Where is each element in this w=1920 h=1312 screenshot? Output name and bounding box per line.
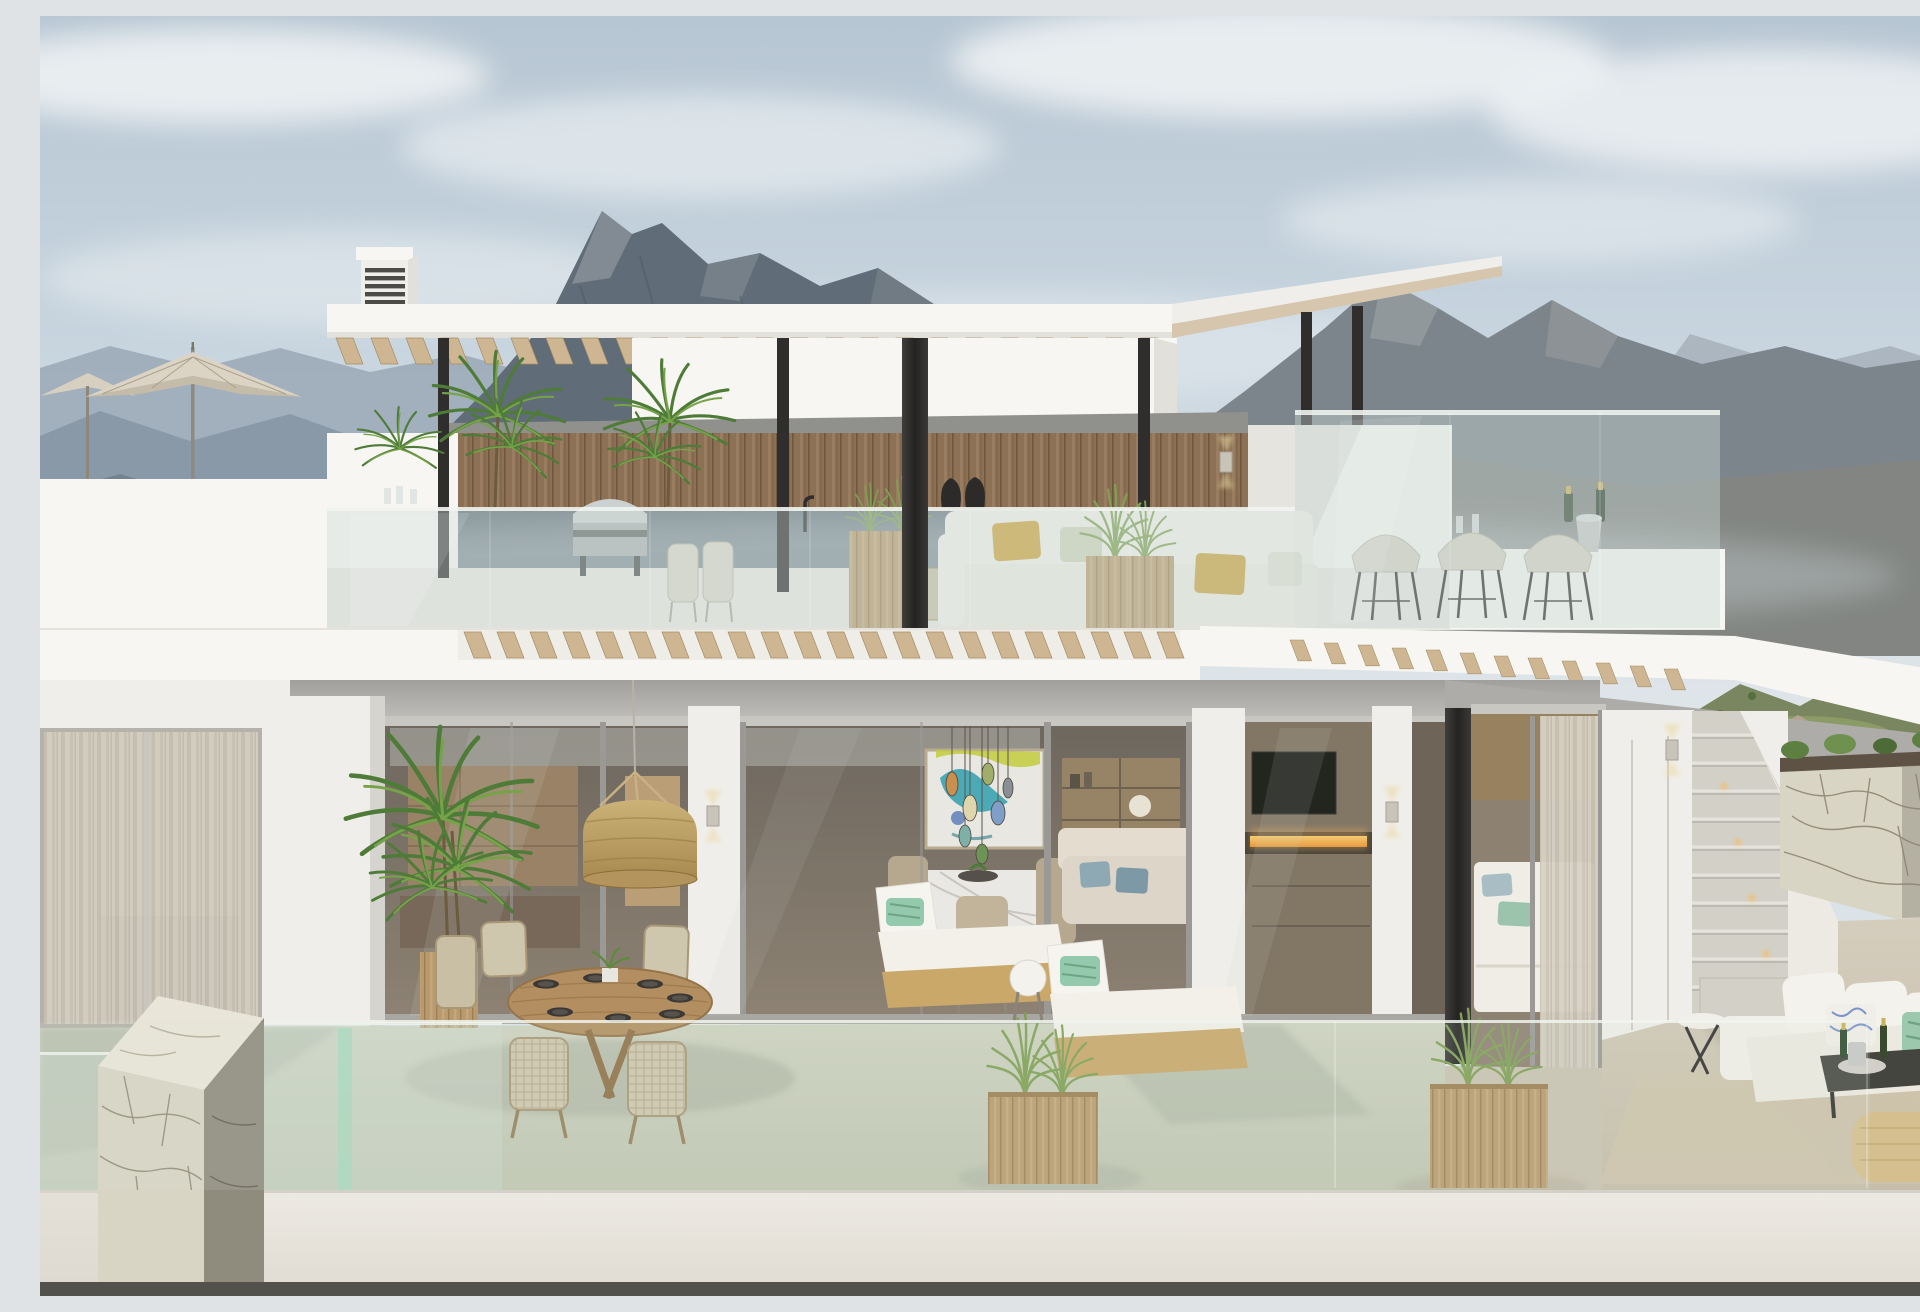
front-parapet — [40, 1190, 1920, 1296]
roof-glass-balustrade — [327, 507, 1295, 629]
lounger-pillow-1 — [886, 898, 924, 926]
bottom-edge-strip — [40, 1282, 1920, 1296]
curtain-door-left — [40, 728, 262, 1028]
stone-retaining-wall — [1780, 731, 1920, 921]
bar-wind-screen — [1295, 410, 1720, 628]
wall-pillar-c — [1372, 706, 1412, 1028]
stair-wall — [1602, 710, 1694, 1040]
pergola-column-main — [902, 338, 928, 634]
lounger-pillow-2 — [1060, 956, 1100, 986]
kitchen-timber-cladding — [458, 433, 1248, 509]
bedroom-wing — [1471, 704, 1606, 1070]
terrace-glass-railing — [40, 1020, 1870, 1190]
wall-pillar-left — [262, 696, 385, 1028]
bedroom-curtain — [1540, 716, 1602, 1068]
chimney-vent — [356, 247, 418, 309]
villa-render — [40, 16, 1920, 1296]
